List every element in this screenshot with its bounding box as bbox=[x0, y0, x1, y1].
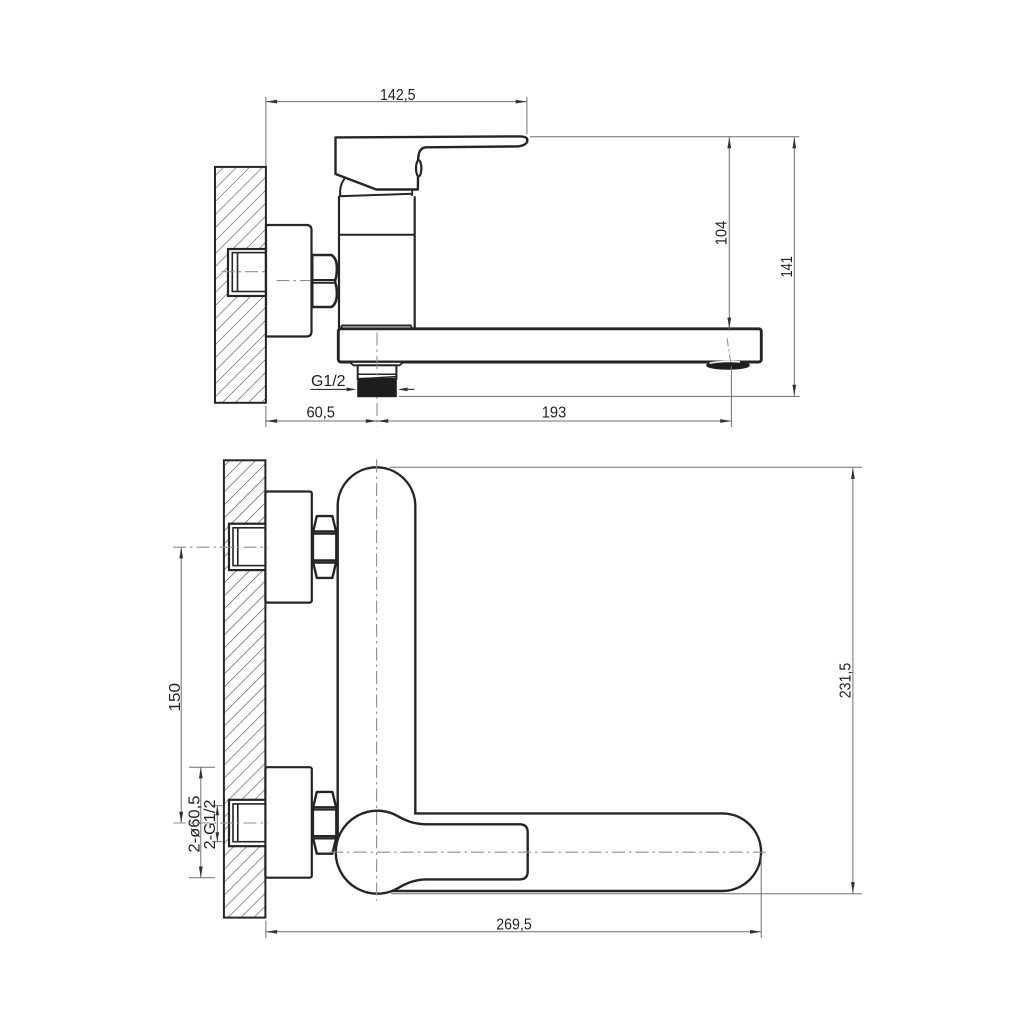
svg-text:G1/2: G1/2 bbox=[311, 373, 346, 390]
svg-text:193: 193 bbox=[542, 405, 567, 422]
svg-text:231,5: 231,5 bbox=[838, 663, 855, 699]
svg-text:2-G1/2: 2-G1/2 bbox=[202, 800, 219, 850]
svg-text:150: 150 bbox=[167, 683, 184, 712]
svg-text:269,5: 269,5 bbox=[496, 917, 531, 934]
svg-text:142,5: 142,5 bbox=[380, 87, 416, 104]
svg-text:60,5: 60,5 bbox=[306, 405, 335, 422]
svg-text:104: 104 bbox=[713, 220, 730, 245]
svg-text:141: 141 bbox=[779, 256, 796, 278]
